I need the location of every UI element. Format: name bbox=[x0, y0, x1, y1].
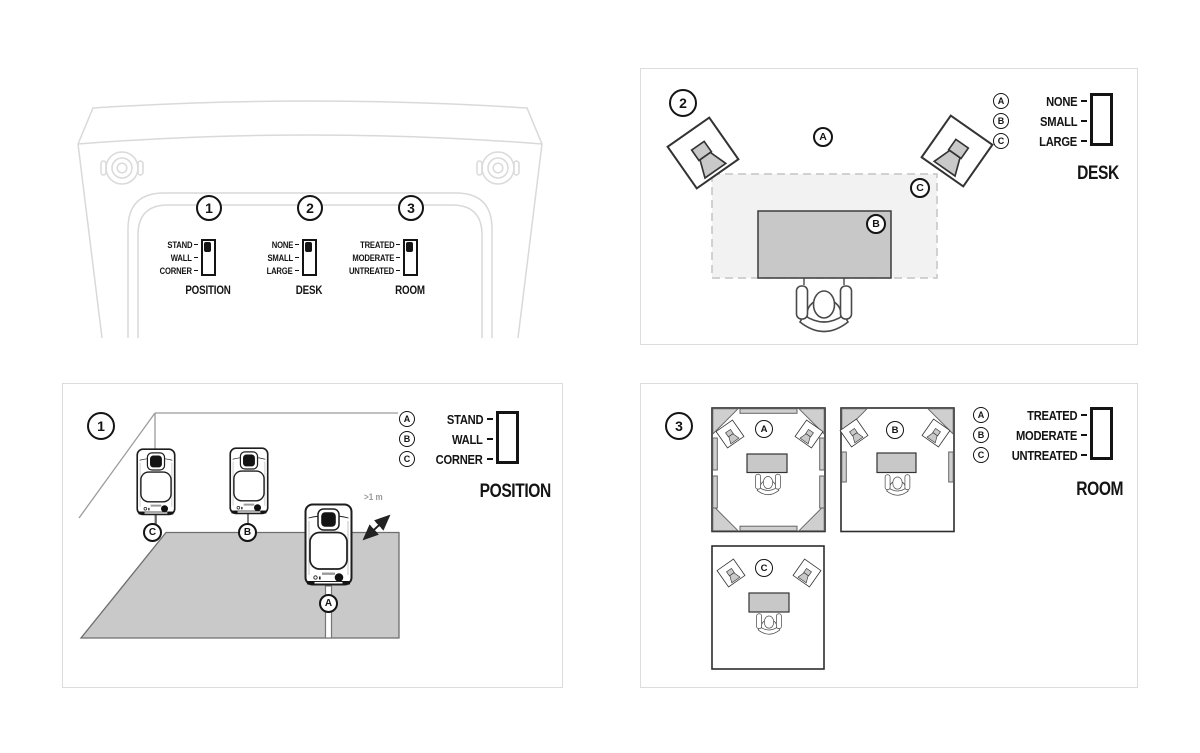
legend-row: A NONE bbox=[993, 91, 1087, 111]
legend-row: A STAND bbox=[399, 409, 493, 429]
legend-label: STAND bbox=[447, 412, 483, 427]
switch-caption: DESK bbox=[275, 285, 343, 297]
switch-knob bbox=[305, 242, 312, 252]
rear-panel-diagram: 1 STAND WALL CORNER POSITION 2 NONE SMAL… bbox=[60, 92, 560, 338]
switch-option-label: WALL bbox=[171, 253, 192, 263]
marker-untreated: C bbox=[755, 559, 773, 577]
legend-key-badge: A bbox=[399, 411, 415, 427]
legend-label: CORNER bbox=[436, 452, 483, 467]
legend-key-badge: C bbox=[973, 447, 989, 463]
legend-label: WALL bbox=[452, 432, 483, 447]
tick-mark bbox=[396, 270, 400, 272]
marker-treated: A bbox=[755, 420, 773, 438]
switch-option-label: SMALL bbox=[268, 253, 294, 263]
room-switch: 3 TREATED MODERATE UNTREATED ROOM bbox=[338, 238, 418, 298]
legend-row: C CORNER bbox=[399, 449, 493, 469]
tick-mark bbox=[1081, 454, 1087, 456]
panel-number-badge: 3 bbox=[665, 412, 693, 440]
legend-switch-outline bbox=[1090, 407, 1113, 460]
legend-switch-outline bbox=[496, 411, 519, 464]
tick-mark bbox=[1081, 434, 1087, 436]
legend-switch-outline bbox=[1090, 93, 1113, 146]
tick-mark bbox=[487, 438, 493, 440]
switch-option-label: LARGE bbox=[267, 266, 293, 276]
switch-number-badge: 2 bbox=[297, 195, 323, 221]
desk bbox=[877, 453, 916, 473]
slide-switch bbox=[302, 239, 317, 276]
left-mount-ring bbox=[101, 152, 143, 184]
legend-caption: DESK bbox=[1077, 163, 1119, 185]
wall-mount-stubs bbox=[156, 514, 248, 525]
manual-page: 1 STAND WALL CORNER POSITION 2 NONE SMAL… bbox=[0, 0, 1200, 753]
corner-speaker bbox=[137, 449, 174, 514]
switch-caption: ROOM bbox=[376, 285, 444, 297]
legend-label: TREATED bbox=[1027, 408, 1077, 423]
tick-mark bbox=[396, 244, 400, 246]
tick-mark bbox=[295, 244, 299, 246]
tick-mark bbox=[194, 257, 198, 259]
tick-mark bbox=[396, 257, 400, 259]
legend-row: C UNTREATED bbox=[973, 445, 1087, 465]
tick-mark bbox=[1081, 414, 1087, 416]
tick-mark bbox=[1081, 120, 1087, 122]
legend-row: B MODERATE bbox=[973, 425, 1087, 445]
listener-top-view bbox=[885, 475, 910, 495]
switch-option-label: MODERATE bbox=[352, 253, 394, 263]
tick-mark bbox=[1081, 140, 1087, 142]
switch-option-label: UNTREATED bbox=[349, 266, 394, 276]
tick-mark bbox=[1081, 100, 1087, 102]
slide-switch bbox=[403, 239, 418, 276]
tick-mark bbox=[487, 418, 493, 420]
position-legend: A STAND B WALL C CORNER POSITION bbox=[399, 409, 519, 529]
marker-stand: A bbox=[319, 594, 338, 613]
listener-top-view bbox=[757, 614, 782, 634]
marker-wall: B bbox=[238, 523, 257, 542]
switch-option-label: TREATED bbox=[360, 240, 394, 250]
legend-key-badge: B bbox=[399, 431, 415, 447]
marker-no-desk: A bbox=[813, 127, 833, 147]
legend-key-badge: C bbox=[399, 451, 415, 467]
legend-label: SMALL bbox=[1040, 114, 1077, 129]
legend-caption: ROOM bbox=[1076, 479, 1123, 501]
switch-number-badge: 1 bbox=[196, 195, 222, 221]
legend-key-badge: B bbox=[973, 427, 989, 443]
listener-top-view bbox=[756, 474, 781, 494]
switch-knob bbox=[406, 242, 413, 252]
stand-speaker bbox=[306, 505, 352, 585]
legend-key-badge: C bbox=[993, 133, 1009, 149]
chair-links bbox=[804, 278, 844, 285]
legend-label: UNTREATED bbox=[1011, 448, 1077, 463]
tick-mark bbox=[487, 458, 493, 460]
tick-mark bbox=[295, 270, 299, 272]
switch-option-label: NONE bbox=[272, 240, 293, 250]
desk-legend: A NONE B SMALL C LARGE DESK bbox=[993, 91, 1113, 211]
legend-caption: POSITION bbox=[480, 481, 551, 503]
legend-label: MODERATE bbox=[1016, 428, 1077, 443]
legend-row: C LARGE bbox=[993, 131, 1087, 151]
desk-switch: 2 NONE SMALL LARGE DESK bbox=[237, 238, 317, 298]
desk bbox=[747, 454, 787, 473]
slide-switch bbox=[201, 239, 216, 276]
switch-option-label: CORNER bbox=[160, 266, 192, 276]
right-mount-ring bbox=[477, 152, 519, 184]
marker-small-desk: B bbox=[866, 214, 886, 234]
legend-row: B SMALL bbox=[993, 111, 1087, 131]
position-switch: 1 STAND WALL CORNER POSITION bbox=[136, 238, 216, 298]
legend-label: LARGE bbox=[1039, 134, 1077, 149]
switch-number-badge: 3 bbox=[398, 195, 424, 221]
legend-row: A TREATED bbox=[973, 405, 1087, 425]
panel-number-badge: 1 bbox=[87, 412, 115, 440]
tick-mark bbox=[194, 244, 198, 246]
legend-label: NONE bbox=[1046, 94, 1077, 109]
switch-options: NONE SMALL LARGE bbox=[237, 238, 299, 277]
marker-large-desk: C bbox=[910, 178, 930, 198]
marker-corner: C bbox=[143, 523, 162, 542]
switch-knob bbox=[204, 242, 211, 252]
distance-note: >1 m bbox=[364, 492, 383, 502]
legend-key-badge: A bbox=[993, 93, 1009, 109]
cabinet-top-band bbox=[78, 135, 542, 144]
switch-options: TREATED MODERATE UNTREATED bbox=[338, 238, 400, 277]
marker-moderate: B bbox=[886, 421, 904, 439]
tick-mark bbox=[194, 270, 198, 272]
wall-speaker bbox=[230, 448, 267, 513]
desk bbox=[749, 593, 789, 612]
switch-option-label: STAND bbox=[167, 240, 192, 250]
room-legend: A TREATED B MODERATE C UNTREATED ROOM bbox=[973, 405, 1113, 525]
legend-row: B WALL bbox=[399, 429, 493, 449]
panel-number-badge: 2 bbox=[669, 89, 697, 117]
switch-caption: POSITION bbox=[174, 285, 242, 297]
position-setup-panel: 1 >1 m C B A A STAND B WALL C CORNER bbox=[62, 383, 563, 688]
room-setup-panel: 3 A B C A TREATED B MODERATE C UNTREATED bbox=[640, 383, 1138, 688]
legend-key-badge: B bbox=[993, 113, 1009, 129]
switch-options: STAND WALL CORNER bbox=[136, 238, 198, 277]
desk-setup-panel: 2 A B C A NONE B SMALL C LARGE DESK bbox=[640, 68, 1138, 345]
legend-key-badge: A bbox=[973, 407, 989, 423]
listener-top-view bbox=[797, 286, 852, 332]
tick-mark bbox=[295, 257, 299, 259]
